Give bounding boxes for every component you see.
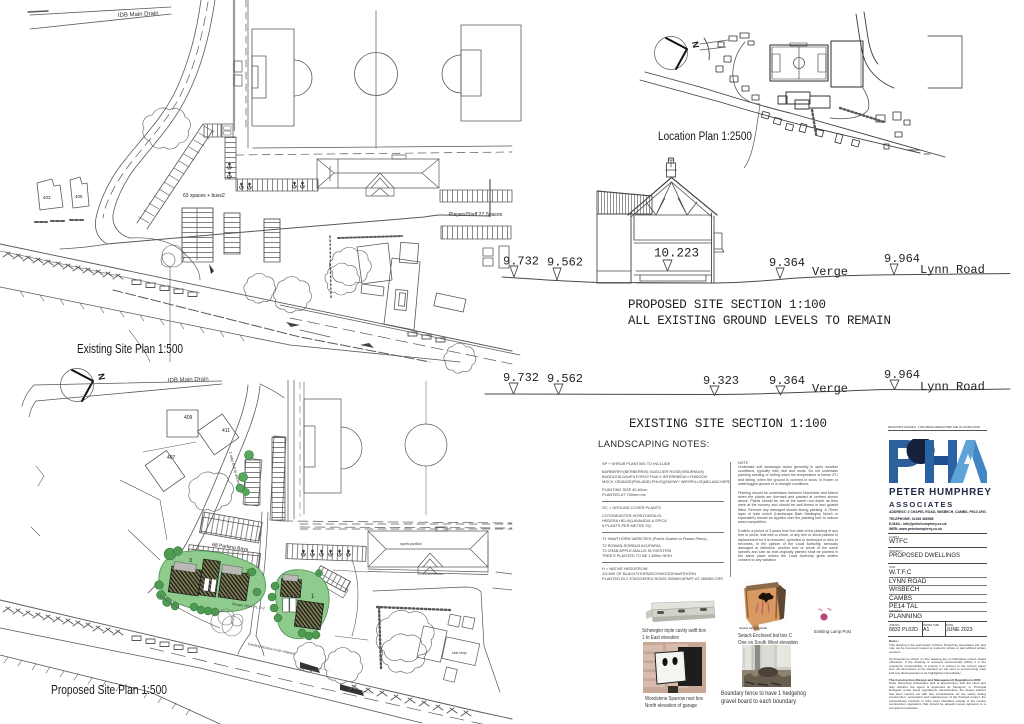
svg-text:Verge: Verge bbox=[812, 382, 848, 396]
svg-text:Existing Access to be retained: Existing Access to be retained bbox=[248, 642, 296, 656]
svg-text:10.223: 10.223 bbox=[654, 247, 699, 261]
svg-text:Existing Site Plan 1:500: Existing Site Plan 1:500 bbox=[77, 341, 183, 356]
svg-text:9.562: 9.562 bbox=[547, 372, 583, 386]
svg-text:Location Plan 1:2500: Location Plan 1:2500 bbox=[658, 131, 752, 143]
svg-text:Existing Lamp Post: Existing Lamp Post bbox=[814, 629, 852, 634]
svg-text:Schwegler triple cavity swift: Schwegler triple cavity swift box bbox=[642, 628, 706, 634]
svg-text:Setack bat box detail: Setack bat box detail bbox=[739, 626, 767, 630]
svg-text:Setack Enclosed bat box C: Setack Enclosed bat box C bbox=[738, 633, 792, 639]
svg-text:9.323: 9.323 bbox=[703, 374, 739, 388]
svg-text:407: 407 bbox=[167, 455, 176, 461]
svg-text:Woodstone Sparrow nest box: Woodstone Sparrow nest box bbox=[645, 696, 703, 702]
svg-text:North elevation of garage: North elevation of garage bbox=[645, 703, 697, 709]
svg-text:3: 3 bbox=[189, 558, 192, 564]
svg-text:Boundary fence to have 1 hedge: Boundary fence to have 1 hedgehog bbox=[721, 690, 806, 697]
svg-text:9.562: 9.562 bbox=[547, 256, 583, 270]
svg-text:9.732: 9.732 bbox=[503, 371, 539, 385]
svg-text:9.964: 9.964 bbox=[884, 368, 920, 382]
svg-text:403: 403 bbox=[43, 195, 51, 200]
svg-text:N: N bbox=[690, 41, 701, 49]
svg-text:409: 409 bbox=[184, 415, 193, 421]
svg-text:PROPOSED SITE SECTION 1:100: PROPOSED SITE SECTION 1:100 bbox=[628, 298, 826, 312]
svg-text:63 spaces + busx2: 63 spaces + busx2 bbox=[183, 193, 225, 199]
svg-text:N: N bbox=[96, 373, 107, 381]
svg-text:sports pavilion: sports pavilion bbox=[400, 542, 422, 546]
svg-text:gravel board to each boundary: gravel board to each boundary bbox=[721, 698, 797, 705]
svg-text:9.732: 9.732 bbox=[503, 255, 539, 269]
svg-text:405: 405 bbox=[75, 194, 83, 199]
svg-text:EXISTING SITE SECTION 1:100: EXISTING SITE SECTION 1:100 bbox=[629, 417, 827, 431]
svg-text:IDB Main Drain: IDB Main Drain bbox=[118, 11, 159, 19]
svg-text:Lynn Road: Lynn Road bbox=[920, 263, 985, 277]
svg-text:IDB Main Drain: IDB Main Drain bbox=[168, 377, 209, 384]
svg-text:9.364: 9.364 bbox=[769, 256, 805, 270]
svg-text:ALL EXISTING GROUND LEVELS TO: ALL EXISTING GROUND LEVELS TO REMAIN bbox=[628, 314, 891, 328]
svg-text:Lynn Road: Lynn Road bbox=[920, 380, 985, 394]
svg-text:411: 411 bbox=[222, 428, 230, 434]
svg-text:9.964: 9.964 bbox=[884, 252, 920, 266]
svg-text:9.364: 9.364 bbox=[769, 374, 805, 388]
svg-text:club shop: club shop bbox=[452, 651, 467, 655]
svg-text:Verge: Verge bbox=[812, 265, 848, 279]
svg-text:Proposed Site Plan 1:500: Proposed Site Plan 1:500 bbox=[51, 682, 167, 697]
svg-text:1 to East elevation: 1 to East elevation bbox=[642, 635, 679, 641]
